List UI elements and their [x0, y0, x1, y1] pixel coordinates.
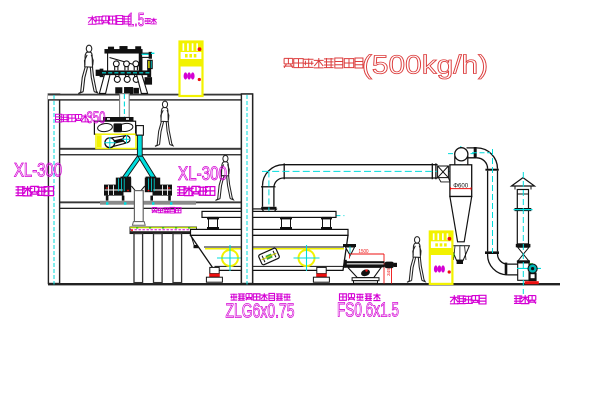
svg-text:FS0.6x1.5: FS0.6x1.5	[337, 300, 399, 322]
svg-text:1.5: 1.5	[128, 9, 145, 30]
svg-text:XL-300: XL-300	[178, 163, 227, 185]
svg-text:XL-300: XL-300	[14, 160, 62, 182]
svg-text:350: 350	[87, 108, 106, 127]
svg-text:1500: 1500	[359, 249, 369, 255]
svg-text:ZLG6x0.75: ZLG6x0.75	[226, 301, 295, 323]
svg-text:345: 345	[386, 268, 392, 276]
svg-text:(500kg/h): (500kg/h)	[362, 50, 488, 80]
